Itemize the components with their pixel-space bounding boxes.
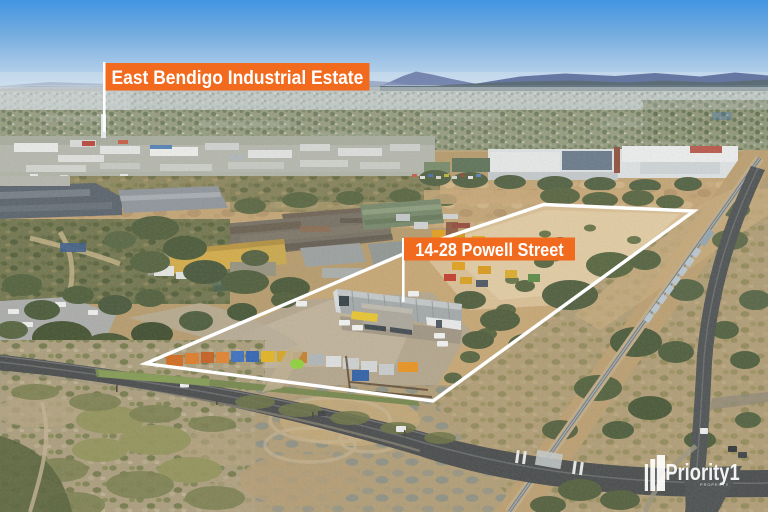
svg-text:14-28 Powell Street: 14-28 Powell Street bbox=[415, 239, 564, 260]
svg-text:PROPERTY: PROPERTY bbox=[700, 482, 729, 487]
svg-text:East Bendigo Industrial Estate: East Bendigo Industrial Estate bbox=[112, 66, 364, 88]
